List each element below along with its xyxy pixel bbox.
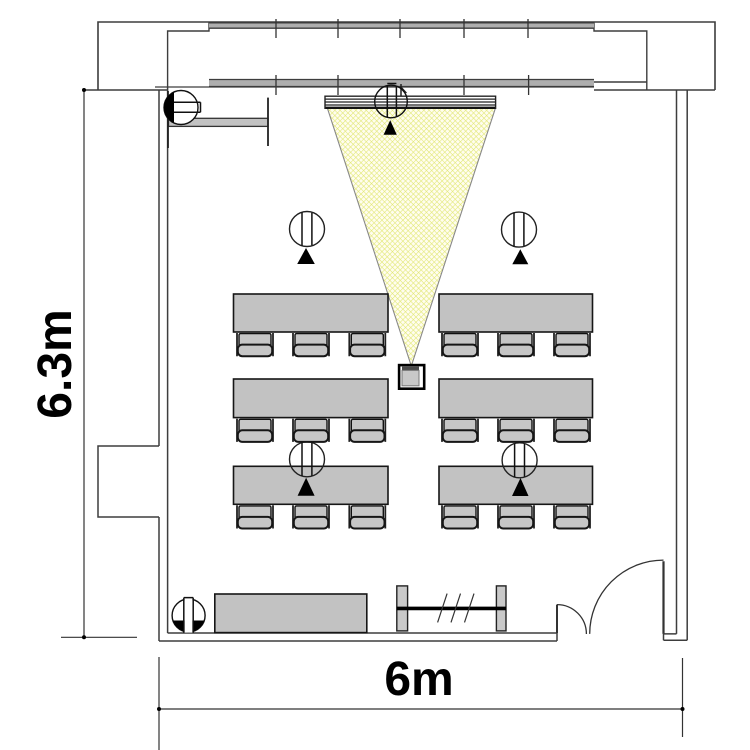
svg-text:6m: 6m <box>384 653 453 706</box>
svg-text:6.3m: 6.3m <box>29 309 82 418</box>
